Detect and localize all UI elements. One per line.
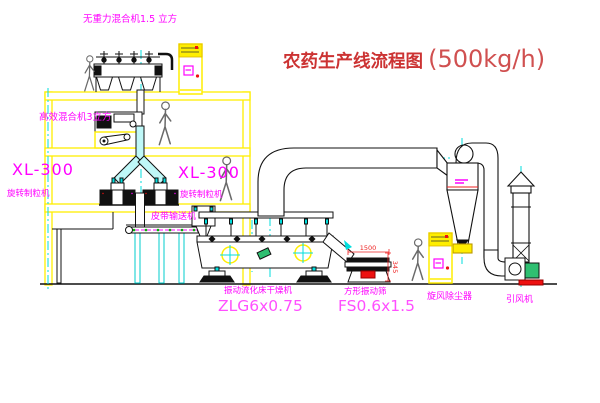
exhaust-duct <box>258 148 448 216</box>
dryer-posts <box>205 218 329 236</box>
exhaust-stack <box>508 172 534 262</box>
stack-rain-cap <box>508 172 534 186</box>
label-high-efficiency-mixer: 高效混合机3立方 <box>39 111 112 123</box>
fan-motor <box>525 263 539 278</box>
title-text: 农药生产线流程图 <box>282 51 423 72</box>
label-fluid-bed-dryer: 振动流化床干燥机 <box>224 285 293 296</box>
label-granulator-left-name: 旋转制粒机 <box>7 188 50 199</box>
gravity-free-mixer <box>94 51 172 114</box>
person-mid-floor <box>159 102 170 145</box>
mixer-discharge-pipe <box>137 90 144 114</box>
label-granulator-left-model: XL-300 <box>12 160 74 179</box>
label-fan: 引风机 <box>506 293 533 305</box>
roof-slab <box>45 92 250 100</box>
label-belt-conveyor: 皮带输送机 <box>151 210 196 222</box>
mezzanine <box>52 212 113 283</box>
person-ground <box>412 239 423 280</box>
cyclone-inlet-taper <box>437 150 448 176</box>
granulator-discharge-chute <box>136 193 145 227</box>
label-gravity-mixer: 无重力混合机1.5 立方 <box>83 13 177 25</box>
label-granulator-right-model: XL-300 <box>178 163 240 182</box>
fan-inlet-elbow <box>484 250 506 276</box>
sieve-drive <box>361 271 375 278</box>
mid-floor-slab <box>45 148 250 156</box>
label-square-sieve-model: FS0.6x1.5 <box>338 297 415 315</box>
diagram-title: 农药生产线流程图 (500kg/h) <box>282 45 545 73</box>
sieve-assembly <box>323 233 391 282</box>
label-square-sieve: 方形振动筛 <box>344 286 387 297</box>
person-roof <box>85 56 94 91</box>
cyclone <box>447 143 506 276</box>
cyclone-rotary-valve <box>453 244 472 253</box>
induced-draft-fan <box>505 258 543 285</box>
fan-base <box>519 280 543 285</box>
control-cabinet-1 <box>179 44 202 94</box>
dryer-foot-left <box>200 267 234 282</box>
belt-conveyor <box>126 225 205 283</box>
cyclone-barrel <box>447 163 478 190</box>
dim-sieve-height: 345 <box>391 261 399 273</box>
dryer-foot-right <box>297 267 331 282</box>
dim-sieve-length: 1500 <box>360 244 377 252</box>
diagram-svg: 无重力混合机1.5 立方 农药生产线流程图 (500kg/h) 高效混合机3立方… <box>0 0 600 403</box>
label-cyclone: 旋风除尘器 <box>427 290 472 302</box>
label-granulator-right-name: 旋转制粒机 <box>180 189 223 200</box>
cad-flow-diagram: 无重力混合机1.5 立方 农药生产线流程图 (500kg/h) 高效混合机3立方… <box>0 0 600 403</box>
control-cabinet-2 <box>429 233 452 283</box>
label-fluid-bed-dryer-model: ZLG6x0.75 <box>218 297 303 315</box>
title-capacity: (500kg/h) <box>428 45 545 73</box>
